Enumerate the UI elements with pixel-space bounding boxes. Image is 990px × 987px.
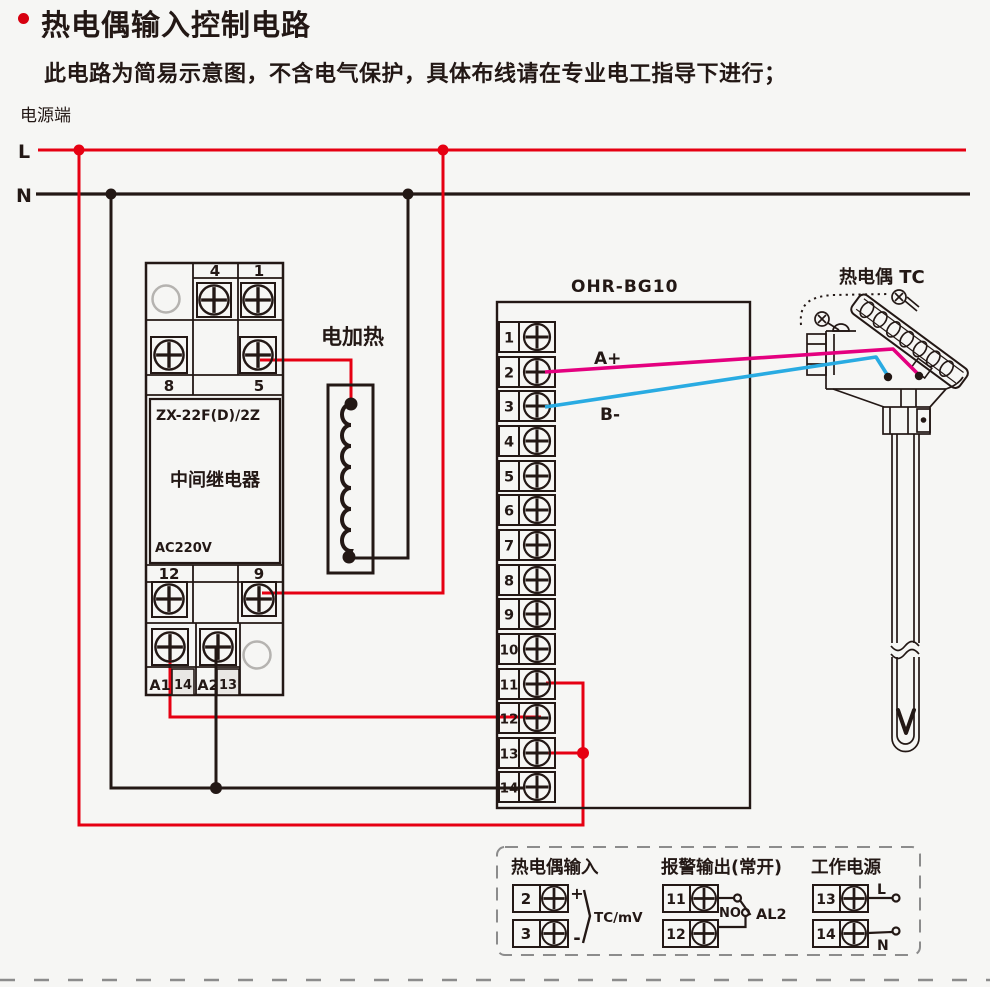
thermocouple-head — [807, 324, 963, 752]
relay-mount-hole — [244, 642, 271, 669]
relay-screw-9 — [244, 584, 273, 613]
circuit-diagram: L N — [0, 0, 990, 987]
legend-screw-14 — [842, 922, 866, 946]
wire-n-to-heater — [351, 194, 408, 558]
heater-bottom-dot — [343, 551, 356, 564]
terminal-number: 4 — [504, 435, 514, 451]
terminal-row: 5 — [499, 461, 555, 491]
heater-label: 电加热 — [321, 325, 384, 349]
legend-terminal-number: 11 — [666, 892, 685, 908]
legend-input-title: 热电偶输入 — [511, 857, 599, 878]
legend-alarm-group: 报警输出(常开) 11 12 NO AL2 — [661, 857, 787, 947]
terminal-row: 4 — [499, 426, 555, 456]
terminal-row: 8 — [499, 565, 555, 595]
lid-chain-dotted — [801, 294, 889, 325]
legend-power-title: 工作电源 — [811, 857, 881, 878]
relay-terminal-label: 13 — [219, 678, 237, 693]
terminal-number: 1 — [504, 331, 514, 347]
relay-screw-1 — [243, 285, 272, 314]
terminal-number: 3 — [504, 400, 514, 416]
relay-screw-8 — [154, 340, 183, 369]
heater-coil — [342, 404, 351, 557]
terminal-number: 8 — [504, 574, 514, 590]
thermocouple-label: 热电偶 TC — [839, 266, 925, 288]
terminal-number: 11 — [500, 678, 519, 694]
relay-model: ZX-22F(D)/2Z — [156, 408, 260, 424]
terminal-number: 10 — [500, 643, 519, 659]
line-n-label: N — [16, 185, 32, 207]
relay-mount-hole — [153, 286, 180, 313]
terminal-row: 10 — [499, 634, 555, 664]
terminal-row: 9 — [499, 599, 555, 629]
controller-terminal-strip: 1 2 3 4 5 6 7 8 9 10 11 12 13 14 — [499, 322, 555, 802]
relay-terminal-label: 9 — [254, 565, 264, 583]
legend-terminal-number: 13 — [816, 892, 835, 908]
red-junction-dot — [577, 747, 589, 759]
relay-name: 中间继电器 — [170, 469, 261, 491]
terminal-number: 9 — [504, 608, 514, 624]
terminal-number: 2 — [504, 366, 514, 382]
relay-terminal-label: 14 — [174, 678, 192, 693]
terminal-row: 7 — [499, 530, 555, 560]
terminal-number: 14 — [500, 781, 519, 797]
power-l-label: L — [877, 882, 886, 898]
power-n-label: N — [877, 938, 889, 954]
terminal-number: 13 — [500, 747, 519, 763]
thermocouple-lid — [844, 292, 971, 397]
relay-screw-4 — [199, 285, 228, 314]
legend-screw-13 — [842, 887, 866, 911]
relay-screw-a2 — [203, 632, 232, 661]
legend-terminal-number: 2 — [521, 890, 531, 908]
legend: 热电偶输入 2 3 + - TC/mV 报警输出(常开) — [0, 847, 990, 980]
legend-screw-12 — [692, 922, 716, 946]
line-l-label: L — [18, 141, 30, 163]
controller: OHR-BG10 1 2 3 4 5 6 7 8 9 10 11 12 13 1… — [497, 277, 750, 808]
terminal-number: 7 — [504, 539, 514, 555]
contact-type-label: NO — [719, 906, 741, 921]
relay-terminal-label: 4 — [210, 262, 220, 280]
neutral-wires — [111, 194, 524, 794]
legend-screw-2 — [542, 887, 566, 911]
heater-top-dot — [345, 398, 358, 411]
relay: 4 1 8 5 12 9 A1 A2 14 13 ZX-22F(D)/2Z 中间… — [146, 262, 283, 695]
heater-box — [328, 385, 373, 573]
black-junction-dot — [210, 782, 222, 794]
terminal-number: 12 — [500, 712, 519, 728]
legend-terminal-number: 12 — [666, 927, 685, 943]
terminal-row: 12 — [499, 703, 555, 733]
head-screw-icon — [815, 312, 839, 330]
relay-terminal-label: 12 — [159, 565, 180, 583]
legend-input-group: 热电偶输入 2 3 + - TC/mV — [511, 857, 643, 949]
terminal-row: 6 — [499, 495, 555, 525]
legend-signal-label: TC/mV — [594, 910, 643, 926]
terminal-number: 5 — [504, 470, 514, 486]
power-pin-symbols — [868, 895, 900, 935]
terminal-number: 6 — [504, 504, 514, 520]
polarity-minus: - — [573, 928, 580, 949]
power-rails: L N — [16, 141, 970, 207]
relay-screw-a1 — [155, 632, 184, 661]
relay-screw-5 — [243, 340, 272, 369]
relay-terminal-label: A2 — [197, 678, 218, 694]
wire-n-to-terminal14 — [111, 194, 524, 788]
legend-power-group: 工作电源 13 14 L N — [811, 857, 900, 954]
brace — [583, 890, 590, 943]
relay-terminal-label: A1 — [149, 678, 170, 694]
terminal-row: 14 — [499, 772, 555, 802]
terminal-row: 1 — [499, 322, 555, 352]
alarm-output-label: AL2 — [756, 907, 787, 923]
relay-screw-12 — [154, 584, 183, 613]
relay-terminal-label: 5 — [254, 377, 264, 395]
wiring-diagram-page: 热电偶输入控制电路 此电路为简易示意图，不含电气保护，具体布线请在专业电工指导下… — [0, 0, 990, 987]
lid-screw-icon — [892, 290, 919, 311]
wire-b-label: B- — [600, 405, 620, 425]
polarity-plus: + — [570, 884, 583, 903]
thermocouple: 热电偶 TC — [545, 266, 970, 752]
terminal-row: 11 — [499, 669, 555, 699]
legend-screw-3 — [542, 922, 566, 946]
terminal-row: 13 — [499, 738, 555, 768]
relay-voltage: AC220V — [155, 541, 212, 556]
wire-b-dot — [884, 373, 892, 381]
legend-terminal-number: 14 — [816, 927, 836, 943]
relay-terminal-label: 1 — [254, 262, 264, 280]
legend-screw-11 — [692, 887, 716, 911]
controller-model: OHR-BG10 — [571, 277, 678, 297]
legend-alarm-title: 报警输出(常开) — [661, 857, 782, 878]
wire-a-dot — [915, 372, 923, 380]
legend-terminal-number: 3 — [521, 925, 531, 943]
relay-terminal-label: 8 — [164, 377, 174, 395]
